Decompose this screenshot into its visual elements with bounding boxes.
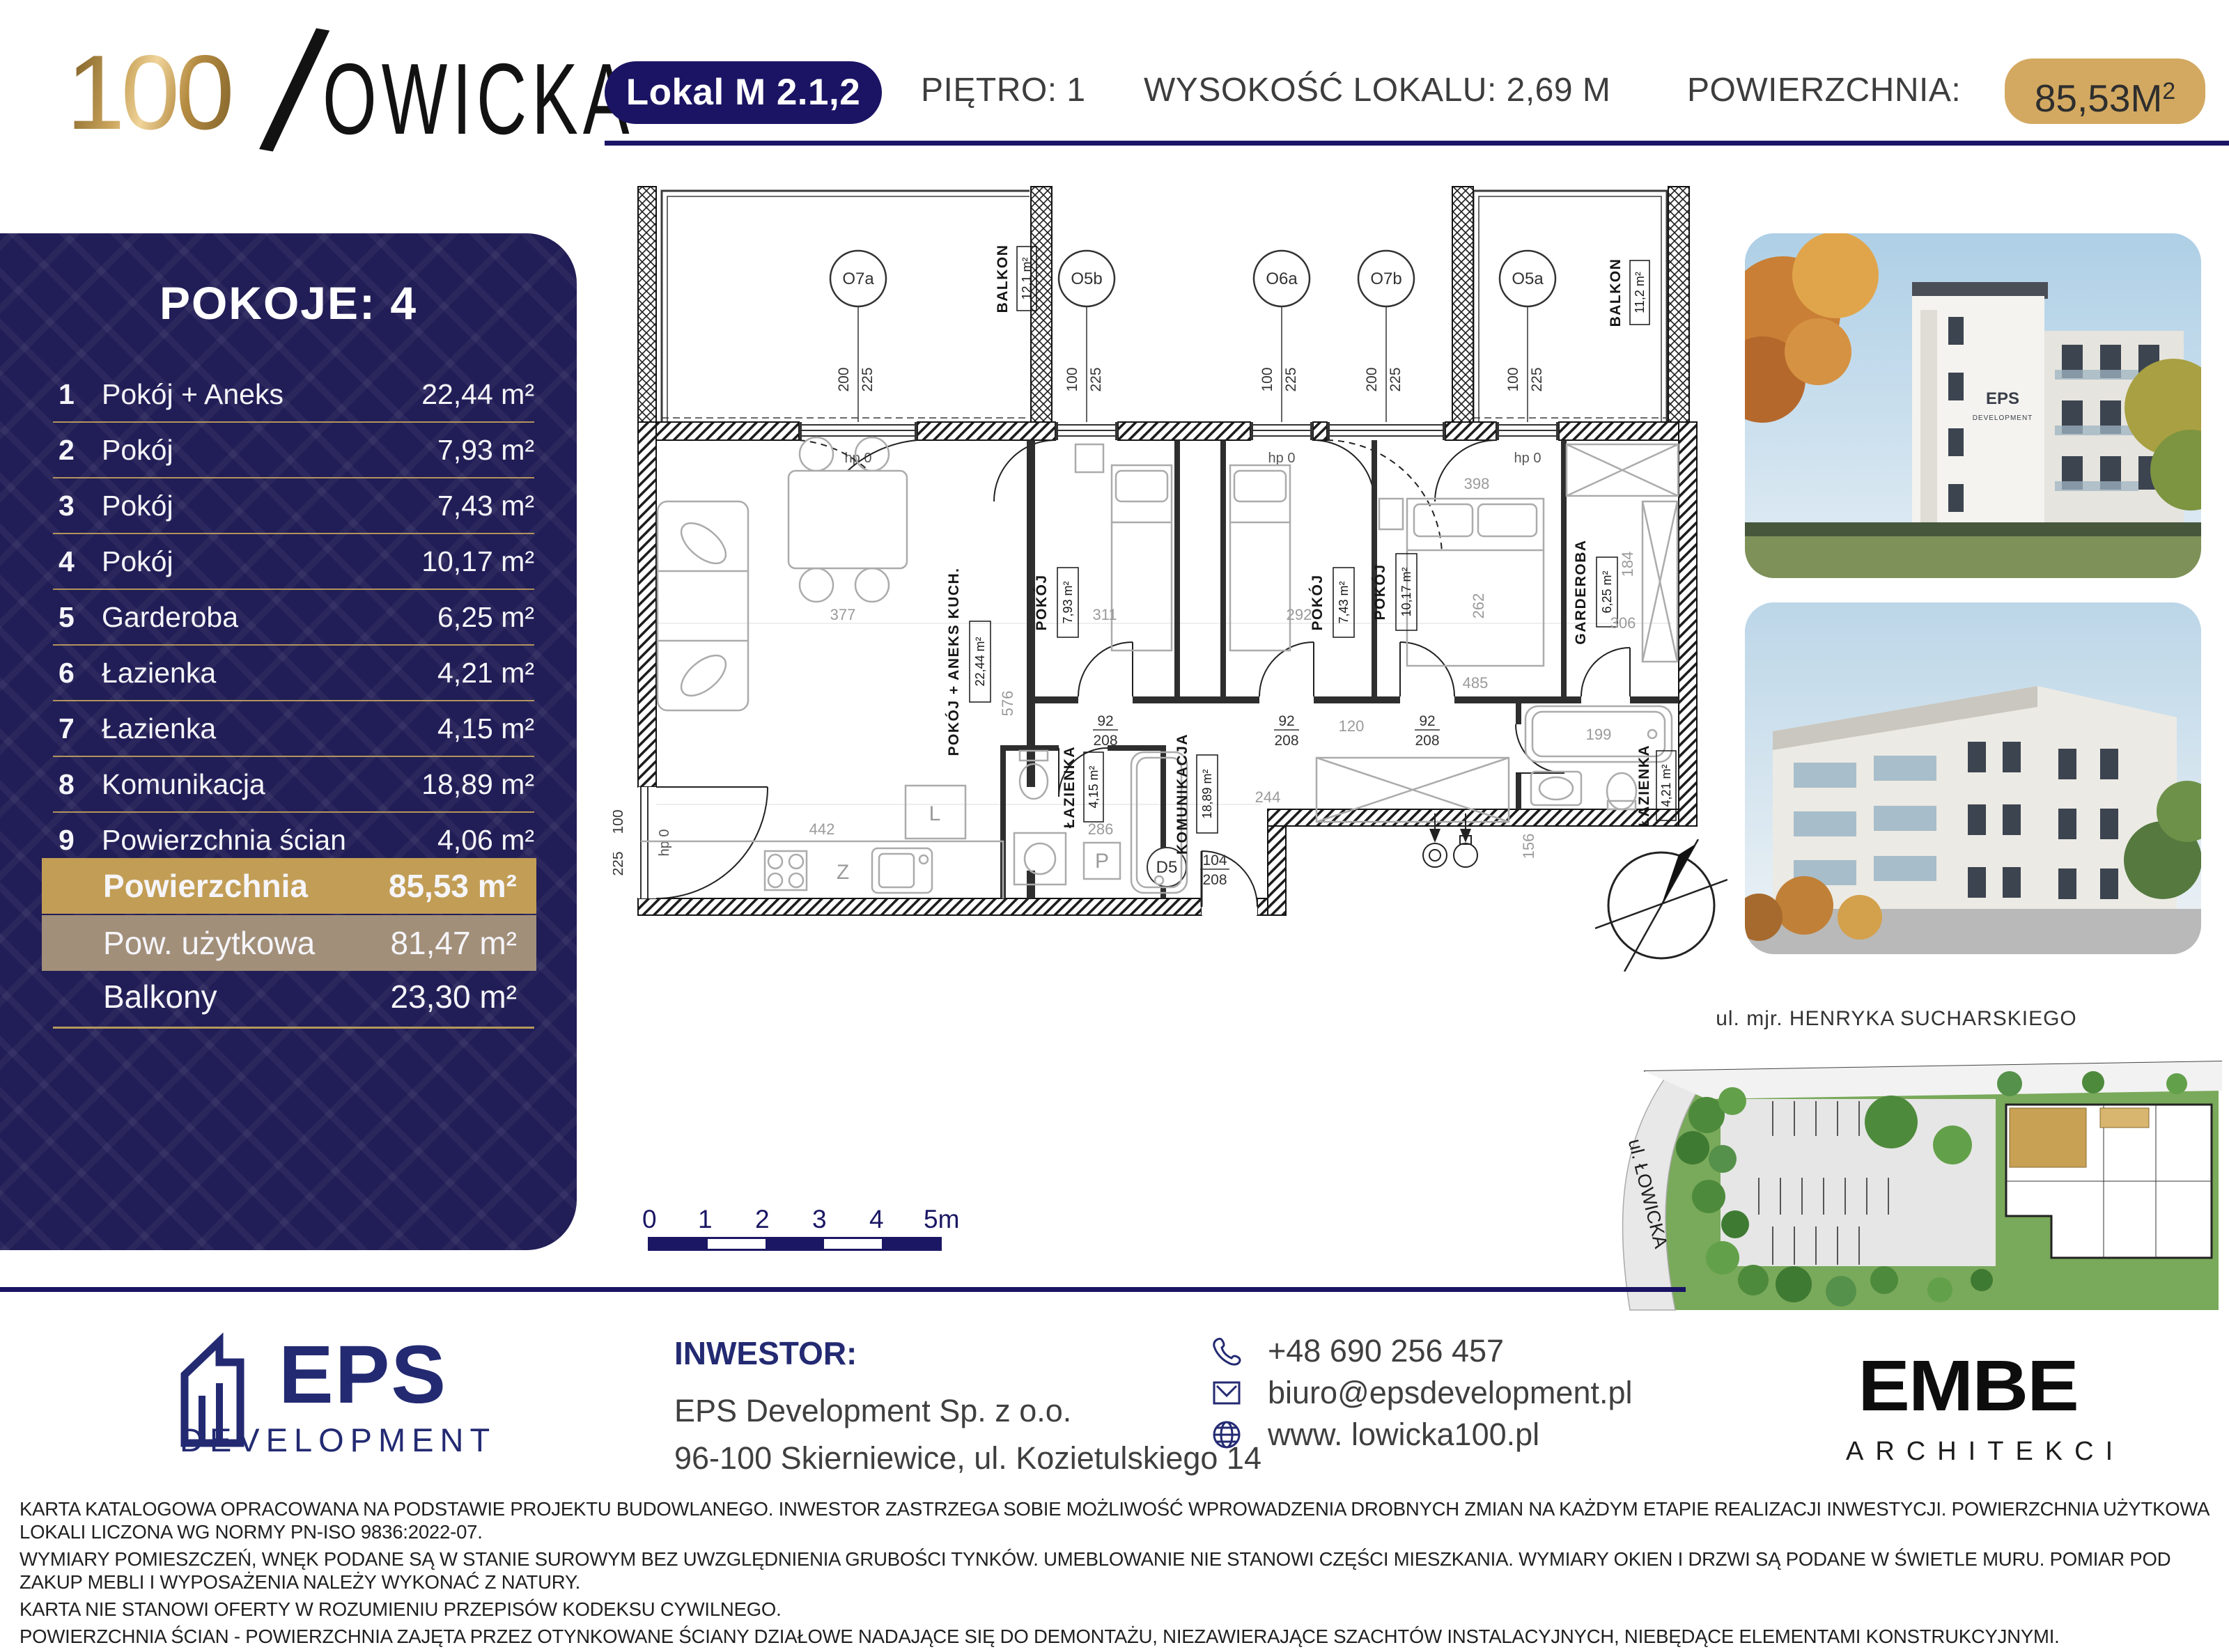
window-markers: O7a200225 O5b100225 O6a100225 O7b200225 … <box>830 251 1555 422</box>
svg-text:576: 576 <box>999 691 1016 717</box>
row-value: 18,89 m² <box>421 768 534 801</box>
investor-heading: INWESTOR: <box>674 1334 1261 1372</box>
svg-text:225: 225 <box>1283 367 1299 391</box>
eps-logo-sub: DEVELOPMENT <box>180 1421 496 1459</box>
svg-text:hp 0: hp 0 <box>1268 451 1296 466</box>
site-plan: ul. ŁOWICKA <box>1564 1035 2229 1316</box>
svg-text:292: 292 <box>1287 606 1312 623</box>
eps-logo-name: EPS <box>279 1327 447 1422</box>
svg-text:O7a: O7a <box>842 270 874 288</box>
disclaimer-line: WYMIARY POMIESZCZEŃ, WNĘK PODANE SĄ W ST… <box>20 1548 2214 1593</box>
row-name: Komunikacja <box>102 768 265 801</box>
website-url[interactable]: www. lowicka100.pl <box>1268 1417 1539 1453</box>
row-value: 7,43 m² <box>437 490 534 522</box>
row-no: 3 <box>53 490 102 522</box>
disclaimer-line: KARTA NIE STANOWI OFERTY W ROZUMIENIU PR… <box>20 1598 2214 1621</box>
row-name: Pokój <box>102 434 173 467</box>
summary-value: 81,47 m² <box>390 924 517 962</box>
svg-text:208: 208 <box>1415 733 1439 749</box>
svg-text:ŁAZIENKA: ŁAZIENKA <box>1062 746 1078 828</box>
row-no: 7 <box>53 712 102 745</box>
svg-text:100: 100 <box>1064 367 1080 391</box>
brand-logo: 100 / OWICKA <box>66 13 596 173</box>
washbasin-1 <box>1531 772 1581 805</box>
bed-single-1 <box>1075 444 1172 650</box>
svg-text:225: 225 <box>1529 367 1545 391</box>
svg-text:92: 92 <box>1419 713 1435 729</box>
area-label: POWIERZCHNIA: <box>1687 71 1961 109</box>
svg-text:225: 225 <box>1088 367 1104 391</box>
table-row: 4Pokój10,17 m² <box>53 533 534 589</box>
svg-text:200: 200 <box>836 367 852 391</box>
investor-block: INWESTOR: EPS Development Sp. z o.o. 96-… <box>674 1334 1261 1488</box>
svg-text:O7b: O7b <box>1370 270 1401 288</box>
row-value: 10,17 m² <box>421 545 534 578</box>
svg-text:hp 0: hp 0 <box>657 829 672 857</box>
svg-text:200: 200 <box>1364 367 1380 391</box>
svg-text:7,93 m²: 7,93 m² <box>1061 581 1075 623</box>
north-compass <box>1595 839 1727 972</box>
svg-text:O6a: O6a <box>1266 270 1298 288</box>
svg-text:O5b: O5b <box>1071 270 1102 288</box>
contact-block: +48 690 256 457 biuro@epsdevelopment.pl … <box>1211 1336 1633 1461</box>
table-row: 7Łazienka4,15 m² <box>53 700 534 756</box>
svg-text:BALKON: BALKON <box>995 244 1011 313</box>
email-address[interactable]: biuro@epsdevelopment.pl <box>1268 1375 1633 1411</box>
washer-letter: P <box>1095 850 1109 873</box>
area-sup: 2 <box>2162 78 2175 104</box>
summary-name: Pow. użytkowa <box>103 924 315 962</box>
floor-plan: O7a200225 O5b100225 O6a100225 O7b200225 … <box>613 174 1700 940</box>
summary-divider <box>53 1027 534 1029</box>
svg-text:hp 0: hp 0 <box>1514 451 1541 466</box>
table-row: 1Pokój + Aneks22,44 m² <box>53 367 534 421</box>
embe-logo-name: EMBE <box>1846 1344 2090 1427</box>
investor-address: 96-100 Skierniewice, ul. Kozietulskiego … <box>674 1440 1261 1476</box>
svg-text:6,25 m²: 6,25 m² <box>1600 570 1614 613</box>
scale-tick: 0 <box>642 1205 657 1234</box>
row-no: 1 <box>53 378 102 411</box>
scale-tick: 4 <box>869 1205 884 1234</box>
window-marker-O5b: O5b100225 <box>1059 251 1114 422</box>
table-row: 5Garderoba6,25 m² <box>53 589 534 644</box>
globe-icon <box>1211 1419 1243 1451</box>
svg-text:262: 262 <box>1470 593 1487 619</box>
kitchen-counter <box>641 786 1003 898</box>
table-row: 8Komunikacja18,89 m² <box>53 756 534 811</box>
row-no: 9 <box>53 824 102 857</box>
disclaimer-line: POWIERZCHNIA ŚCIAN - POWIERZCHNIA ZAJĘTA… <box>20 1625 2214 1648</box>
svg-text:199: 199 <box>1586 726 1612 743</box>
svg-text:4,21 m²: 4,21 m² <box>1659 764 1673 806</box>
scale-bar-segments <box>648 1237 942 1251</box>
floor-label: PIĘTRO: 1 <box>921 71 1086 109</box>
window-marker-O5a: O5a100225 <box>1500 251 1555 422</box>
fridge-letter: L <box>929 802 941 825</box>
disclaimer-line: KARTA KATALOGOWA OPRACOWANA NA PODSTAWIE… <box>20 1497 2214 1543</box>
svg-text:ŁAZIENKA: ŁAZIENKA <box>1636 745 1652 827</box>
svg-text:225: 225 <box>613 851 626 875</box>
room-label-living: POKÓJ + ANEKS KUCH.22,44 m² <box>945 567 991 756</box>
svg-text:GARDEROBA: GARDEROBA <box>1573 539 1589 644</box>
summary-value: 85,53 m² <box>389 867 517 905</box>
street-label-top: ul. mjr. HENRYKA SUCHARSKIEGO <box>1564 1007 2229 1031</box>
legal-disclaimer: KARTA KATALOGOWA OPRACOWANA NA PODSTAWIE… <box>20 1497 2214 1652</box>
svg-text:KOMUNIKACJA: KOMUNIKACJA <box>1174 733 1190 855</box>
svg-text:12,1 m²: 12,1 m² <box>1020 257 1034 299</box>
summary-value: 23,30 m² <box>390 978 517 1015</box>
room-label-bedroom1: POKÓJ7,93 m² <box>1033 568 1078 637</box>
phone-row[interactable]: +48 690 256 457 <box>1211 1336 1633 1366</box>
scale-tick: 5m <box>924 1205 959 1234</box>
svg-text:398: 398 <box>1464 475 1490 492</box>
door-dimensions: 92 208 92 208 92 208 <box>1093 713 1440 749</box>
row-no: 4 <box>53 545 102 578</box>
area-value-badge: 85,53M2 <box>2005 59 2205 124</box>
svg-text:POKÓJ + ANEKS KUCH.: POKÓJ + ANEKS KUCH. <box>945 567 962 756</box>
footer-divider <box>0 1287 1686 1292</box>
brand-logo-100: 100 <box>66 32 231 154</box>
balconies-area-row: Balkony23,30 m² <box>42 974 536 1020</box>
svg-text:485: 485 <box>1463 674 1489 692</box>
website-row[interactable]: www. lowicka100.pl <box>1211 1419 1633 1450</box>
svg-text:4,15 m²: 4,15 m² <box>1087 765 1101 808</box>
room-label-hall: KOMUNIKACJA18,89 m² <box>1174 733 1218 855</box>
phone-number[interactable]: +48 690 256 457 <box>1268 1333 1504 1369</box>
svg-text:11,2 m²: 11,2 m² <box>1633 272 1647 313</box>
svg-text:184: 184 <box>1619 552 1636 577</box>
svg-text:442: 442 <box>809 820 835 838</box>
svg-text:286: 286 <box>1088 820 1114 838</box>
embe-logo: EMBE ARCHITEKCI <box>1846 1344 2090 1467</box>
scale-tick: 2 <box>755 1205 770 1234</box>
svg-text:100: 100 <box>1259 367 1275 391</box>
row-no: 5 <box>53 601 102 634</box>
svg-text:22,44 m²: 22,44 m² <box>973 637 987 686</box>
svg-text:208: 208 <box>1274 733 1298 749</box>
brand-logo-street: OWICKA <box>323 42 635 158</box>
row-name: Pokój <box>102 545 173 578</box>
email-row[interactable]: biuro@epsdevelopment.pl <box>1211 1378 1633 1408</box>
building-photo-2 <box>1745 602 2201 954</box>
row-value: 4,21 m² <box>437 657 534 689</box>
svg-text:POKÓJ: POKÓJ <box>1033 574 1050 630</box>
svg-text:DEVELOPMENT: DEVELOPMENT <box>1973 414 2033 422</box>
bed-single-2 <box>1230 465 1290 650</box>
svg-text:POKÓJ: POKÓJ <box>1372 563 1388 620</box>
embe-logo-sub: ARCHITEKCI <box>1846 1437 2090 1467</box>
table-row: 3Pokój7,43 m² <box>53 477 534 533</box>
row-no: 6 <box>53 657 102 689</box>
building-photo-1: EPS DEVELOPMENT <box>1745 233 2201 578</box>
window-marker-O7b: O7b200225 <box>1358 251 1414 422</box>
row-name: Pokój <box>102 490 173 522</box>
row-value: 6,25 m² <box>437 601 534 634</box>
svg-text:92: 92 <box>1097 713 1113 729</box>
room-table: 1Pokój + Aneks22,44 m² 2Pokój7,93 m² 3Po… <box>0 367 577 867</box>
svg-text:208: 208 <box>1093 733 1117 749</box>
area-summary: Powierzchnia85,53 m² Pow. użytkowa81,47 … <box>0 858 577 1029</box>
row-value: 7,93 m² <box>437 434 534 467</box>
investor-name: EPS Development Sp. z o.o. <box>674 1393 1261 1429</box>
header-divider <box>605 141 2229 146</box>
svg-text:225: 225 <box>1388 367 1404 391</box>
row-name: Łazienka <box>102 657 216 689</box>
svg-text:244: 244 <box>1255 788 1281 806</box>
row-value: 4,06 m² <box>437 824 534 857</box>
room-label-bedroom2: POKÓJ7,43 m² <box>1309 568 1354 637</box>
svg-text:104: 104 <box>1202 852 1227 868</box>
svg-text:377: 377 <box>830 606 856 623</box>
svg-text:10,17 m²: 10,17 m² <box>1399 567 1413 616</box>
svg-text:225: 225 <box>860 367 876 391</box>
svg-text:156: 156 <box>1520 834 1537 859</box>
summary-name: Balkony <box>103 978 217 1015</box>
furniture <box>641 437 1678 898</box>
svg-text:D5: D5 <box>1156 858 1178 877</box>
row-value: 22,44 m² <box>421 378 534 411</box>
svg-text:100: 100 <box>613 809 626 834</box>
balcony-label-right: BALKON11,2 m² <box>1608 258 1649 327</box>
phone-icon <box>1211 1335 1243 1367</box>
toilet-1 <box>1607 773 1636 809</box>
row-value: 4,15 m² <box>437 712 534 745</box>
row-name: Łazienka <box>102 712 216 745</box>
room-label-bedroom3: POKÓJ10,17 m² <box>1372 554 1417 630</box>
svg-text:311: 311 <box>1092 606 1117 623</box>
hp-labels: hp 0 hp 0 hp 0 <box>845 451 1541 466</box>
svg-text:92: 92 <box>1278 713 1294 729</box>
area-value: 85,53M <box>2035 77 2162 120</box>
row-no: 8 <box>53 768 102 801</box>
total-area-row: Powierzchnia85,53 m² <box>42 858 536 914</box>
hob-letter: Z <box>837 861 849 884</box>
scale-bar: 0 1 2 3 4 5m <box>646 1205 974 1256</box>
highlighted-unit <box>2010 1108 2086 1167</box>
row-name: Pokój + Aneks <box>102 378 284 411</box>
room-label-bath2: ŁAZIENKA4,15 m² <box>1062 746 1103 828</box>
svg-text:BALKON: BALKON <box>1608 258 1624 327</box>
scale-tick: 1 <box>698 1205 713 1234</box>
row-name: Garderoba <box>102 601 238 634</box>
svg-text:100: 100 <box>1505 367 1521 391</box>
row-no: 2 <box>53 434 102 467</box>
scale-tick: 3 <box>812 1205 827 1234</box>
svg-text:O5a: O5a <box>1512 270 1544 288</box>
table-row: 2Pokój7,93 m² <box>53 421 534 477</box>
svg-text:208: 208 <box>1202 872 1227 888</box>
rooms-count-title: POKOJE: 4 <box>0 276 577 329</box>
room-summary-panel: POKOJE: 4 1Pokój + Aneks22,44 m² 2Pokój7… <box>0 233 577 1250</box>
svg-text:7,43 m²: 7,43 m² <box>1337 581 1351 623</box>
window-marker-O7a: O7a200225 <box>830 251 886 422</box>
sofa <box>658 501 748 710</box>
usable-area-row: Pow. użytkowa81,47 m² <box>42 915 536 971</box>
unit-height-label: WYSOKOŚĆ LOKALU: 2,69 M <box>1144 71 1610 109</box>
svg-text:EPS: EPS <box>1986 389 2019 408</box>
svg-text:120: 120 <box>1339 717 1365 735</box>
side-window-door: 100 225 hp 0 <box>613 787 768 898</box>
svg-text:18,89 m²: 18,89 m² <box>1200 769 1214 818</box>
email-icon <box>1211 1377 1243 1409</box>
summary-name: Powierzchnia <box>103 867 308 905</box>
svg-text:306: 306 <box>1610 614 1636 632</box>
row-name: Powierzchnia ścian <box>102 824 346 857</box>
table-row: 6Łazienka4,21 m² <box>53 644 534 700</box>
unit-number-badge: Lokal M 2.1,2 <box>605 61 882 124</box>
window-marker-O6a: O6a100225 <box>1254 251 1310 422</box>
